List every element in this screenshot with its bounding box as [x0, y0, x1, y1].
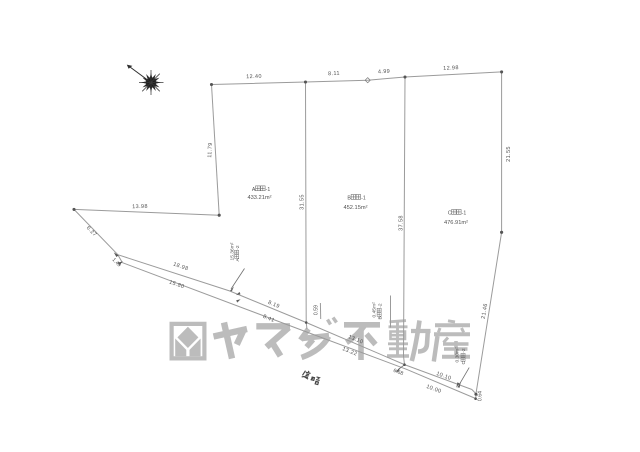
svg-text:A: A	[252, 187, 256, 193]
svg-text:B: B	[377, 316, 383, 319]
svg-text:21.55: 21.55	[506, 146, 512, 162]
svg-text:0.45m²: 0.45m²	[372, 302, 378, 318]
svg-text:-2: -2	[461, 348, 467, 353]
svg-text:0.59: 0.59	[314, 305, 320, 315]
svg-text:8.11: 8.11	[328, 71, 340, 77]
svg-text:-1: -1	[361, 195, 366, 201]
svg-text:31.55: 31.55	[300, 194, 306, 210]
svg-text:0.64: 0.64	[478, 391, 484, 401]
svg-text:4.99: 4.99	[378, 69, 391, 76]
svg-text:-1: -1	[266, 187, 271, 193]
svg-text:12.98: 12.98	[443, 65, 459, 72]
svg-text:15.36m²: 15.36m²	[229, 242, 235, 260]
svg-text:11.79: 11.79	[207, 142, 214, 158]
svg-text:-1: -1	[462, 210, 467, 216]
svg-text:433.21m²: 433.21m²	[247, 195, 271, 201]
svg-text:12.40: 12.40	[246, 74, 262, 81]
svg-text:C: C	[448, 210, 452, 216]
svg-text:-2: -2	[235, 245, 241, 250]
svg-text:0.30m²: 0.30m²	[454, 347, 460, 363]
svg-text:13.98: 13.98	[132, 204, 148, 211]
svg-text:452.15m²: 452.15m²	[343, 205, 367, 211]
svg-text:476.91m²: 476.91m²	[444, 220, 468, 226]
svg-text:37.58: 37.58	[399, 215, 405, 231]
svg-text:B: B	[347, 195, 351, 201]
svg-text:-2: -2	[377, 303, 383, 308]
